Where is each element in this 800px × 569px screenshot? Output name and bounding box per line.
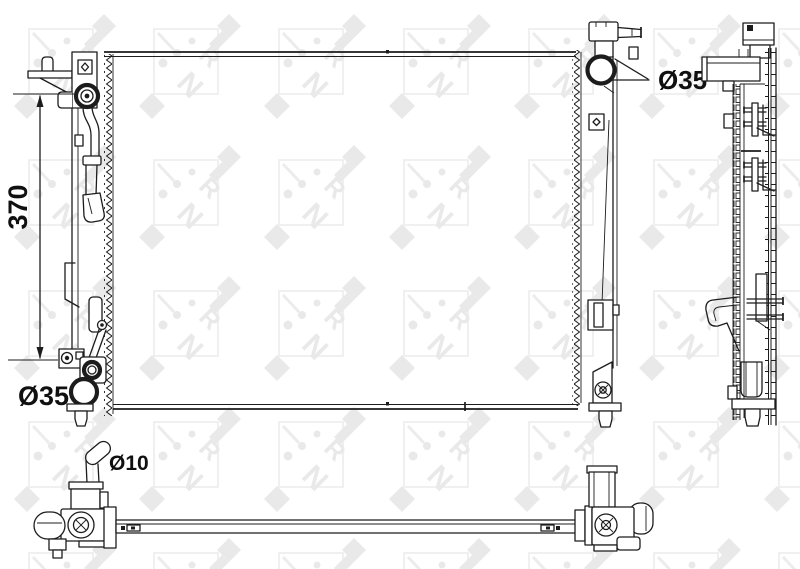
radiator-technical-drawing-page: N R (0, 0, 800, 569)
bottom-bar (116, 520, 577, 533)
right-drain-plug (599, 411, 612, 427)
radiator-technical-drawing: N R (0, 0, 800, 569)
core-right-fin-edge (572, 50, 580, 406)
outlet-port-35 (71, 379, 97, 405)
dimension-370-label: 370 (3, 184, 33, 229)
filler-diameter-label: Ø35 (658, 65, 707, 95)
side-drain-plug (745, 409, 760, 426)
outlet-diameter-label: Ø35 (18, 381, 69, 411)
overflow-diameter-label: Ø10 (109, 452, 149, 475)
core-bottom-tick (386, 402, 389, 406)
filler-neck-port-35 (588, 57, 615, 84)
right-clip (589, 114, 604, 130)
filler-neck-base (595, 41, 613, 57)
overflow-spout (629, 47, 638, 59)
core-top-tick (386, 50, 389, 54)
small-clip (75, 135, 83, 146)
